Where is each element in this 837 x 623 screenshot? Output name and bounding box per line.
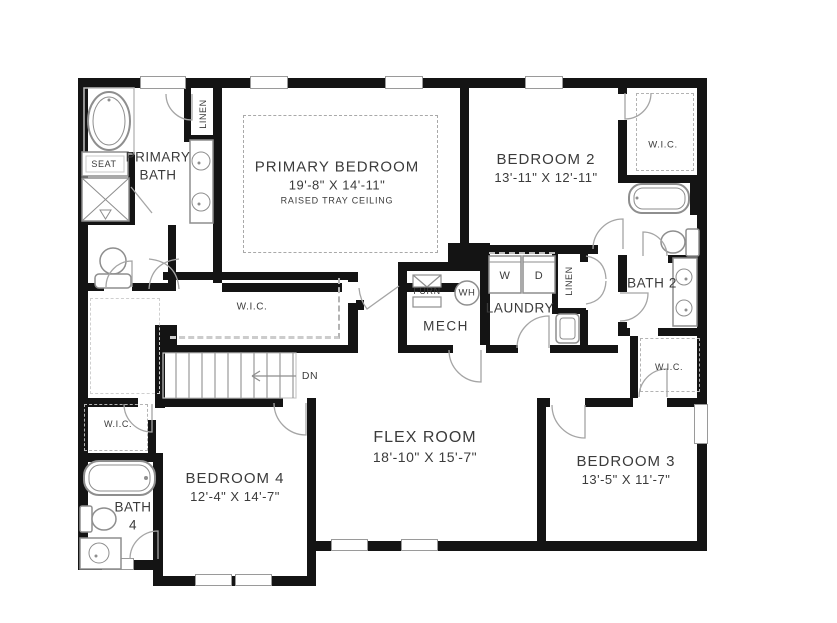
door-arc xyxy=(593,219,623,249)
door-arc xyxy=(130,531,158,559)
label-furnace: FURN xyxy=(413,286,440,296)
room-label-bedroom4: BEDROOM 4 12'-4" X 14'-7" xyxy=(185,470,284,506)
label-wic-primary: W.I.C. xyxy=(237,302,268,313)
room-label-bedroom2: BEDROOM 2 13'-11" X 12'-11" xyxy=(494,151,597,187)
room-dims: 13'-11" X 12'-11" xyxy=(494,170,597,187)
label-dryer: D xyxy=(535,270,544,282)
sink-icon xyxy=(556,314,579,343)
room-label-bath4: BATH 4 xyxy=(110,498,156,533)
room-label-bedroom3: BEDROOM 3 13'-5" X 11'-7" xyxy=(576,453,675,489)
label-seat: SEAT xyxy=(91,159,116,169)
label-wic-bedroom3: W.I.C. xyxy=(655,362,683,372)
door-arc xyxy=(274,403,306,435)
room-name: PRIMARY BATH xyxy=(117,148,199,183)
bathtub-icon xyxy=(629,184,689,213)
door-arc xyxy=(359,286,399,309)
label-linen-hall: LINEN xyxy=(564,266,574,296)
door-arc xyxy=(620,293,648,321)
label-wic-bedroom4: W.I.C. xyxy=(104,419,132,429)
room-label-flex-room: FLEX ROOM 18'-10" X 15'-7" xyxy=(373,428,477,466)
room-dims: 12'-4" X 14'-7" xyxy=(185,489,284,506)
room-dims: 13'-5" X 11'-7" xyxy=(576,472,675,489)
door-arc xyxy=(586,256,606,304)
room-label-mech: MECH xyxy=(423,319,469,334)
label-stairs-down: DN xyxy=(302,370,318,382)
room-label-bath2: BATH 2 xyxy=(627,276,677,291)
room-name: BEDROOM 4 xyxy=(185,470,284,489)
vanity-icon xyxy=(80,538,121,569)
room-note: RAISED TRAY CEILING xyxy=(255,194,419,208)
room-name: FLEX ROOM xyxy=(373,428,477,448)
door-arc xyxy=(449,350,481,382)
room-name: BEDROOM 2 xyxy=(494,151,597,170)
room-name: BATH 4 xyxy=(110,498,156,533)
door-arc xyxy=(552,405,585,438)
bathtub-icon xyxy=(84,461,155,495)
room-dims: 18'-10" X 15'-7" xyxy=(373,448,477,466)
double-vanity-icon xyxy=(673,258,697,326)
door-arc xyxy=(625,93,651,119)
room-label-primary-bedroom: PRIMARY BEDROOM 19'-8" X 14'-11" RAISED … xyxy=(255,158,419,207)
label-linen-primary: LINEN xyxy=(198,99,208,129)
label-wic-bedroom2: W.I.C. xyxy=(648,140,677,151)
room-name: PRIMARY BEDROOM xyxy=(255,158,419,177)
door-arc xyxy=(639,369,667,397)
room-label-laundry: LAUNDRY xyxy=(486,301,554,316)
door-arc xyxy=(131,187,152,213)
toilet-icon xyxy=(95,248,131,288)
stairs-down-arrow xyxy=(252,371,296,381)
primary-bathtub-icon xyxy=(84,88,134,154)
label-washer: W xyxy=(500,270,511,282)
floor-plan: PRIMARY BEDROOM 19'-8" X 14'-11" RAISED … xyxy=(0,0,837,623)
door-arc xyxy=(166,94,192,120)
room-name: BEDROOM 3 xyxy=(576,453,675,472)
door-arc xyxy=(517,316,549,348)
room-dims: 19'-8" X 14'-11" xyxy=(255,177,419,194)
shower-icon xyxy=(82,178,129,221)
door-arc xyxy=(149,259,179,289)
label-water-heater: WH xyxy=(458,288,475,299)
room-label-primary-bath: PRIMARY BATH xyxy=(117,148,199,183)
